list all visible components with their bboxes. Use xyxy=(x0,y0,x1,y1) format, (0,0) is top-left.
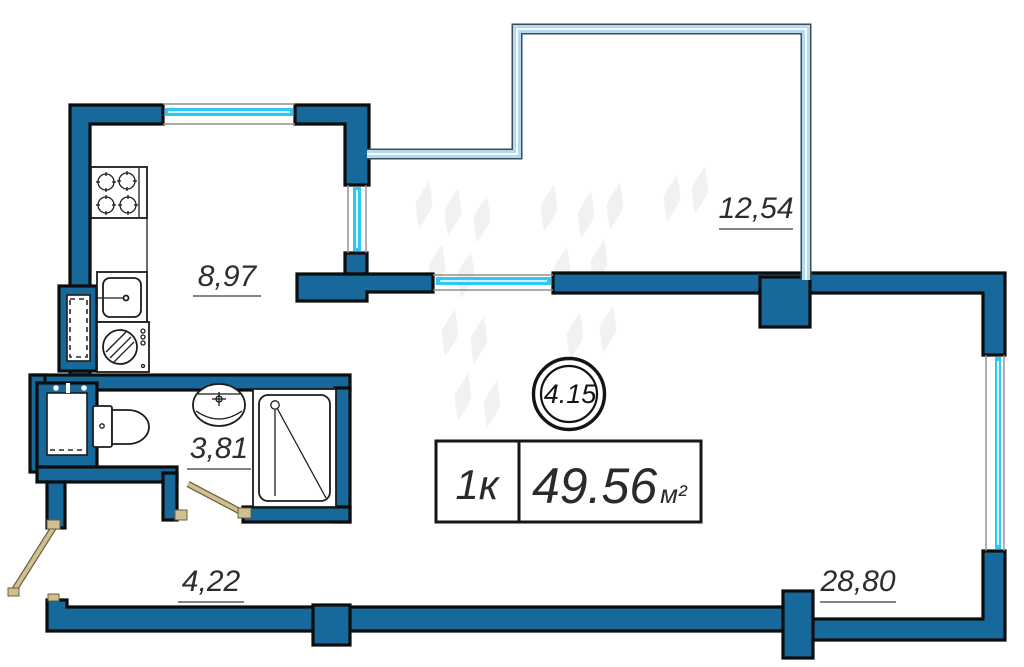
kitchen-top-right-wall xyxy=(295,105,369,185)
bathroom-niche xyxy=(47,383,87,455)
shower-bottom-wall xyxy=(243,507,350,522)
kitchen-living-partition xyxy=(297,274,433,301)
watermark-pattern xyxy=(411,165,714,487)
label-loggia-area: 12,54 xyxy=(718,192,793,225)
kitchen-living-glass-partition xyxy=(348,185,366,253)
kitchen-wall-stub xyxy=(345,253,367,274)
living-room-window xyxy=(986,355,1004,551)
washing-machine-icon xyxy=(97,322,149,372)
label-living-area: 28,80 xyxy=(819,565,895,598)
rooms-count-label: 1к xyxy=(455,461,500,508)
loggia-pier xyxy=(760,277,810,327)
bottom-pier-right xyxy=(783,591,813,658)
niche-mark-dot-left xyxy=(53,385,59,391)
niche-mark-dot-right xyxy=(81,385,87,391)
living-loggia-french-window xyxy=(433,275,553,290)
entrance-door xyxy=(8,520,60,601)
label-bathroom-area: 3,81 xyxy=(190,432,248,465)
summary-box: 1к 49.56м² xyxy=(436,441,701,522)
shower-tray-icon xyxy=(253,389,336,507)
loggia-glazing xyxy=(367,29,806,280)
unit-number: 4.15 xyxy=(544,379,598,409)
floor-plan-page: 8,97 12,54 3,81 4,22 28,80 4.15 1к 49.56… xyxy=(0,0,1024,667)
bottom-left-wall xyxy=(47,600,787,631)
toilet-icon xyxy=(93,406,149,447)
glazing-center-line xyxy=(367,29,806,280)
kitchen-sink-icon xyxy=(97,272,147,322)
kitchen-window xyxy=(163,104,295,124)
shower-right-wall xyxy=(335,388,350,522)
label-kitchen-area: 8,97 xyxy=(198,260,258,293)
bathroom-bottom-wall xyxy=(37,467,177,482)
niche-mark-bar xyxy=(66,383,70,393)
floor-plan: 8,97 12,54 3,81 4,22 28,80 4.15 1к 49.56… xyxy=(0,0,1024,667)
vent-shaft xyxy=(67,295,90,361)
kitchen-fixtures xyxy=(91,167,149,372)
bottom-pier-left xyxy=(313,605,350,645)
bathroom-sink-icon xyxy=(193,384,245,426)
stove-icon xyxy=(91,167,147,218)
unit-number-badge: 4.15 xyxy=(534,359,605,430)
kitchen-counter xyxy=(91,218,147,272)
label-hallway-area: 4,22 xyxy=(182,565,241,598)
niche-opening xyxy=(47,393,87,455)
bathroom-door xyxy=(175,484,251,520)
